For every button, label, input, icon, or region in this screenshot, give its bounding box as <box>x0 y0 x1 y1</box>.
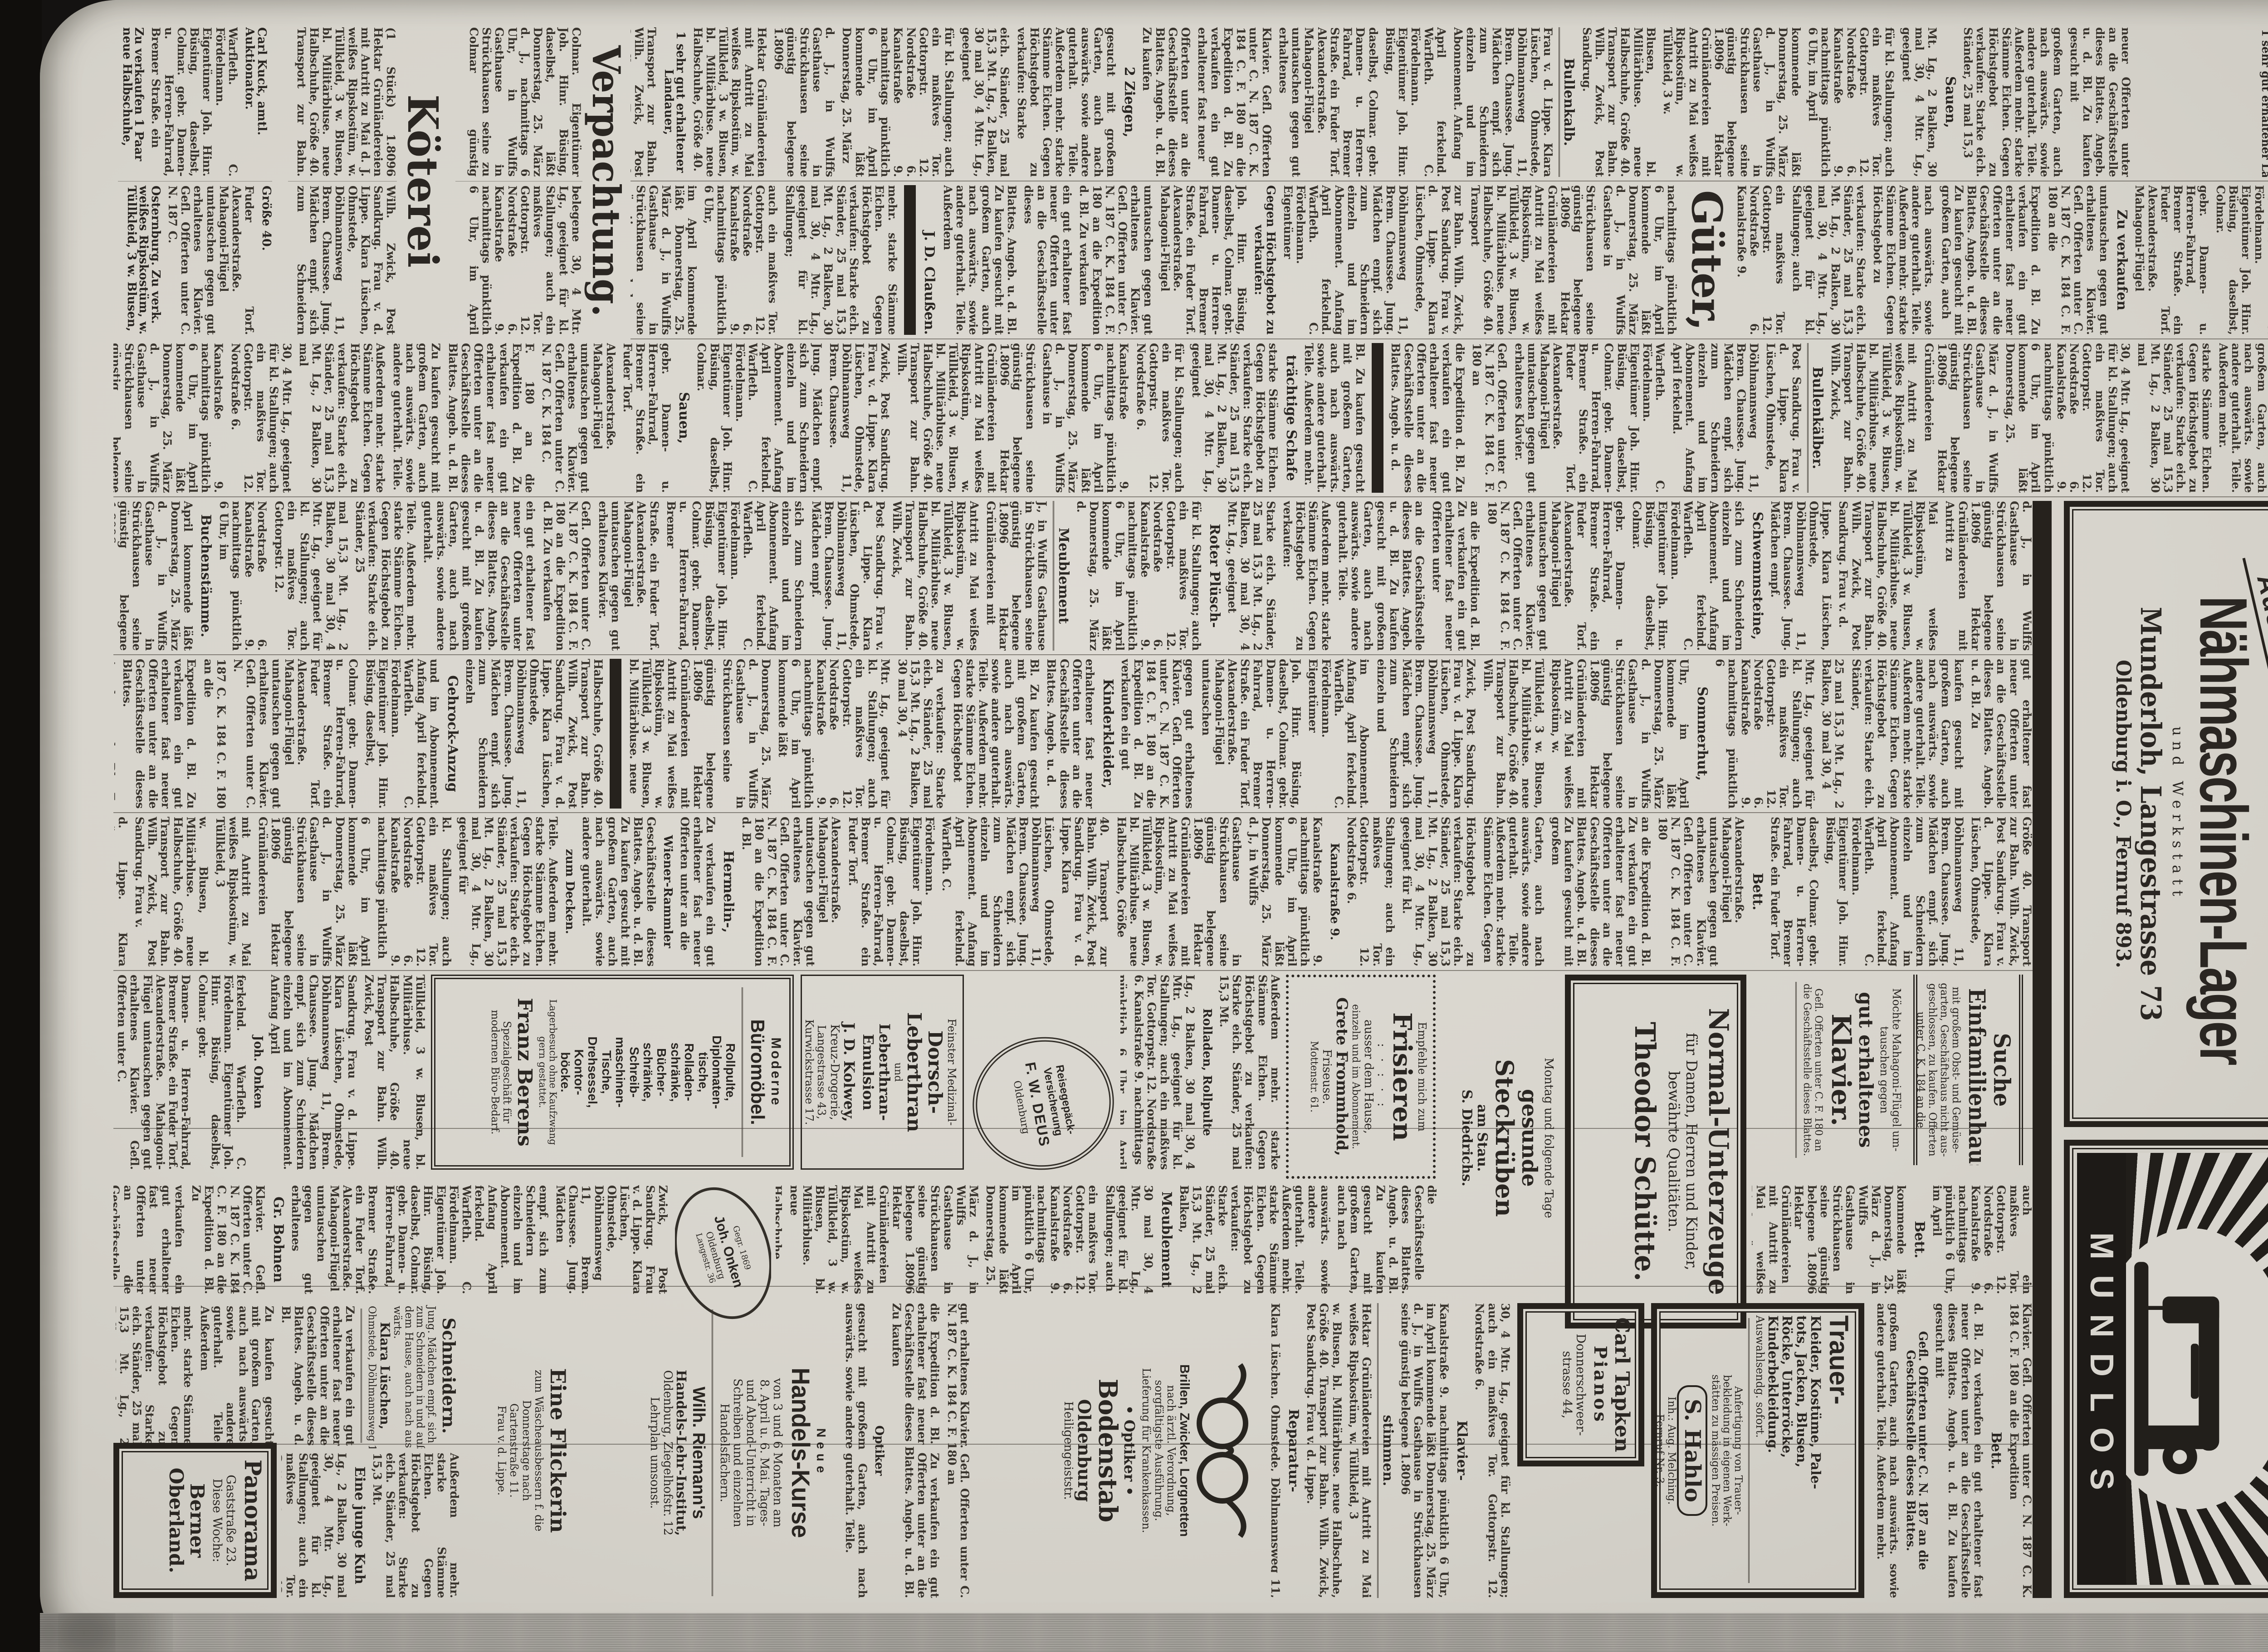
column-4-filler: d. J., in Wulffs Gasthause in Strückhaus… <box>114 501 2033 651</box>
ad-munderloh-name: Munderloh, Langestrasse 73 <box>2136 535 2165 1092</box>
body-text: w. Blusen, bl. Militärbluse. neue Halbsc… <box>1305 1303 1343 1598</box>
body-text: Blattes. Angeb. u. d. Bl. Zu kaufen gesu… <box>941 185 1018 335</box>
ad-text-line: Fernruf Nr. 3. <box>1654 1315 1665 1586</box>
ad-text-line: Klavier. <box>1827 979 1855 1161</box>
ad-text-line: stätten zu mässigen Preisen. <box>1710 1315 1721 1586</box>
body-text: Teile. Außerdem mehr. starke Stämme Eich… <box>457 817 559 966</box>
sewing-machine-icon <box>2113 1251 2263 1487</box>
ad-text-line: Oldenburg <box>1075 1307 1093 1594</box>
body-text: Lippe. Klara Lüschen, Ohmstede, Döhlmann… <box>1769 501 1833 651</box>
ad-text-line: wärts. <box>392 1306 403 1446</box>
body-text: ein gut erhaltener fast neuer Offerten u… <box>421 501 537 651</box>
body-text: mit Antritt zu Mai weißes Ripskostüm, w.… <box>1828 343 1918 493</box>
ad-text-line: unter C. K. 184 an die <box>1915 979 1926 1161</box>
body-text: d. Bl. Zu verkaufen ein gut erhaltener f… <box>1933 1303 1984 1598</box>
body-text: Angeb. u. d. Bl. Zu kaufen gesucht mit g… <box>114 659 117 809</box>
body-text: Sandkrug. Frau v. d. Lippe. Klara Lüsche… <box>269 975 358 1170</box>
body-text: Expedition d. Bl. Zu verkaufen ein gut e… <box>1939 185 2042 335</box>
body-text: Lüschen, Ohmstede, Döhlmannsweg 11, Brem… <box>940 817 1055 966</box>
ad-text-line: ausser dem Hause, <box>1362 982 1374 1172</box>
ad-text-line: zum Wäscheausbessern f. die <box>533 1306 544 1595</box>
body-text: Post Sandkrug. Frau v. d. Lippe. Klara L… <box>1764 343 1803 493</box>
classified-headline: Wiener-Rammler <box>662 817 674 966</box>
body-text: nach auswärts. sowie andere guterhalt. T… <box>1871 185 1935 335</box>
ad-text-line: einzeln und im Abonnement. <box>1350 982 1361 1172</box>
body-text: starke Stämme Eichen. Gegen Höchstgebot … <box>1870 1303 1870 1598</box>
body-text: auch ein maßives Tor. Gottorpstr. 12. No… <box>1931 1185 2033 1294</box>
body-text: verkaufen: Starke eich. Ständer, 25 mal … <box>1790 185 1867 335</box>
body-text: Colmar. gebr. Damen- u. Herren-Fahrrad, … <box>231 659 360 809</box>
ad-panorama: PanoramaGaststraße 23.Diese Woche:Berner… <box>113 1443 277 1598</box>
ad-text-line: J. D. Kolwey, <box>841 980 857 1164</box>
classified-headline: Joh. Onken <box>252 975 264 1170</box>
classified-headline: zum Decken. <box>564 817 576 966</box>
classified-headline: Meublement <box>1053 501 1070 651</box>
zone-verpachtung: Verpachtung.Colmar. Eigentümer Joh. Hinr… <box>448 27 626 335</box>
body-text: Post Sandkrug. Frau v. d. Lippe. Klara L… <box>809 501 886 651</box>
body-text: gut erhaltener fast neuer Offerten unter… <box>1969 659 2033 809</box>
classified-headline: Klavier- <box>1455 1303 1469 1598</box>
body-text: Offerten unter an die Geschäftsstelle di… <box>1140 27 1192 177</box>
body-text: Geschäftsstelle dieses Blattes. Angeb. u… <box>580 817 657 966</box>
body-text: Kanalstraße 9. nachmittags pünktlich 6 U… <box>1399 1303 1450 1598</box>
ad-text-line: Dorsch- <box>925 980 945 1164</box>
body-text: Bl. Zu kaufen gesucht mit großem Garten,… <box>1302 343 1366 493</box>
body-text: mehr. starke Stämme Eichen. Gegen Höchst… <box>116 1306 194 1446</box>
headline-koeterei: Köterei <box>401 27 445 335</box>
ad-text-line: Oberland. <box>166 1455 186 1586</box>
ad-text-line: Langestrasse 43, <box>816 980 827 1164</box>
ad-text-line: modernen Büro-Bedarf. <box>489 985 500 1160</box>
ad-franz-berens-bueromoebel: ModerneBüromöbel.Rollpulte,Diplomaten-ti… <box>431 975 794 1170</box>
ad-text-line: Handels-Kurse <box>787 1314 814 1592</box>
ad-text-line: Handels-Lehr-Institut, <box>675 1307 688 1599</box>
body-text: Zu kaufen gesucht mit großem Garten, auc… <box>391 343 442 493</box>
body-text: an die Expedition d. Bl. Zu verkaufen ei… <box>1430 501 1481 651</box>
ad-eine-flickerin: Eine Flickerinzum Wäscheausbessern f. di… <box>467 1303 572 1598</box>
body-text: Halbschuhe, Größe 40. Transport zur Bahn… <box>464 659 605 809</box>
column-rule <box>113 812 2033 813</box>
ad-text-line: Lieferung für Krankenkassen. <box>1140 1307 1152 1594</box>
body-text: Alexanderstraße. Mahagoni-Flügel umtausc… <box>1656 817 1746 966</box>
ad-text-line: schränke, <box>669 985 682 1160</box>
ad-text-line: Rolladen- <box>683 985 696 1160</box>
ad-text-line: Steckrüben <box>1492 978 1518 1298</box>
column-rule <box>113 970 2033 971</box>
body-text: großem Garten, auch nach auswärts. sowie… <box>1874 1303 1900 1598</box>
body-text: Jung. Mädchen empf. sich zum Schneidern … <box>695 343 823 493</box>
ad-text-line: und Werkstatt <box>2170 511 2185 1117</box>
body-text: Strückhausen seine günstig belegene 1.80… <box>895 343 1036 493</box>
body-text: für kl. Stallungen; auch ein maßives Tor… <box>1806 27 1896 177</box>
body-text: die Expedition d. Bl. Zu verkaufen ein g… <box>890 1303 941 1598</box>
classified-headline: Sommerhut, <box>1695 659 1709 809</box>
body-text: Mai weißes Ripskostüm, w. Tüllkleid, 3 w… <box>1837 501 1939 651</box>
ad-text-line: Suche <box>1990 984 2014 1156</box>
column-rule <box>631 181 2268 181</box>
ad-steckrueben: Montag und folgende TagegesundeSteckrübe… <box>1442 975 1558 1301</box>
zone-body: (1 Stück) 1.8096 Hektar Grünländereien m… <box>288 27 397 335</box>
body-text: günstig belegene 1.8096 Hektar Grünlände… <box>627 659 717 809</box>
body-text: Tüllkleid, 3 w. Blusen, bl. Militärbluse… <box>1481 659 1545 809</box>
body-text: im Abonnement. Anfang April ferkelnd. Wa… <box>1306 659 1370 809</box>
ad-text-line: Möchte Mahagoni-Flügel um- <box>1891 979 1902 1161</box>
ad-text-line: Normal-Unterzeuge <box>1704 997 1732 1306</box>
ad-text-line: sorgfältigste Ausführung. <box>1153 1307 1164 1594</box>
ad-text-line: und Abend-Unterricht in <box>744 1307 757 1599</box>
ad-klavier-tausch: Möchte Mahagoni-Flügel um-tauschen gegen… <box>1758 975 1907 1165</box>
body-text: großem Garten, auch nach auswärts. sowie… <box>2217 343 2268 493</box>
column-8-filler: Zwick, Post Sandkrug. Frau v. d. Lippe. … <box>113 1185 669 1294</box>
masthead-auction-notice: Nachzüge.In der amMittwoch, den 24. d. M… <box>2136 27 2268 177</box>
eyeglasses-icon-wrap <box>1192 1307 1262 1594</box>
ad-text-line: Empfehle mich zum <box>1416 982 1427 1172</box>
body-text: starke Stämme Eichen. Gegen Höchstgebot … <box>1189 343 1279 493</box>
headline-verpachtung: Verpachtung. <box>586 35 626 327</box>
body-text: starke Stämme Eichen. Gegen Höchstgebot … <box>2136 343 2213 493</box>
body-text: auch ein maßives Tor. Gottorpstr. 12. No… <box>702 185 779 335</box>
ad-text-line: Brillen, Zwicker, Lorgnetten <box>1178 1307 1191 1594</box>
ad-text-line: Büromöbel. <box>748 985 767 1160</box>
ad-text-line: 8. April u. 6. Mai. Tages- <box>758 1307 770 1599</box>
divider-rule <box>1795 982 1797 1158</box>
body-text: Klavier. Gefl. Offerten unter C. N. 187 … <box>1196 27 1273 177</box>
classified-headline: Gr. Bohnen <box>271 1185 285 1294</box>
body-text: Höchstgebot zu verkaufen: Starke eich. S… <box>1400 817 1477 966</box>
classified-headline: Rolladen, Rollpulte <box>1201 975 1213 1170</box>
ad-text-line: S. Diedrichs. <box>1460 978 1474 1298</box>
ad-text-line: tische, <box>696 985 709 1160</box>
body-text: 30, 4 Mtr. Lg., geeignet für kl. Stallun… <box>1473 1303 1511 1598</box>
column-rule <box>631 338 2268 339</box>
body-text: Teile. Außerdem mehr. starke Stämme Eich… <box>353 501 417 651</box>
ad-text-line: Feinster Medizinal- <box>946 980 957 1164</box>
body-text: Döhlmannsweg 11, Brem. Chaussee. Jung. M… <box>1824 817 1965 966</box>
body-text: gebr. Damen- u. Herren-Fahrrad, Bremer S… <box>621 343 672 493</box>
ad-text-line: Jung. Mädchen empf. sich <box>426 1306 437 1446</box>
body-text: Zu verkaufen ein gut erhaltener fast neu… <box>678 817 717 966</box>
ad-text-line: Kreuz-Drogerie, <box>828 980 840 1164</box>
ad-text-line: böcke. <box>558 985 572 1160</box>
book-gutter-shadow <box>0 0 42 1652</box>
body-text: Straße. ein Fuder Torf. Alexanderstraße.… <box>596 501 660 651</box>
body-text: daselbst, Colmar. gebr. Damen- u. Herren… <box>1769 817 1820 966</box>
classified-headline: Bett. <box>1989 1303 2003 1598</box>
ad-text-line: Expedition d. Bl. <box>1913 979 1914 1161</box>
body-text: verkaufen ein gut erhaltener fast neuer … <box>113 1185 186 1294</box>
body-text: Lg., 2 Balken, 30 mal 30, 4 Mtr. Lg., ge… <box>281 1453 348 1598</box>
classified-headline: 2 Ziegen, <box>1122 27 1136 177</box>
body-text: Außerdem mehr. starke Stämme Eichen. Geg… <box>1281 501 1332 651</box>
column-rule <box>113 654 2033 655</box>
body-text: gesucht mit großem Garten, auch nach aus… <box>1015 27 1117 177</box>
ad-text-line: gesunde <box>1518 978 1540 1298</box>
ad-text-line: : · : · : <box>1375 982 1388 1172</box>
body-text: die Geschäftsstelle dieses Blattes. Ange… <box>1335 1185 1438 1294</box>
ad-text-line: bekleidung in eigenen Werk- <box>1721 1315 1732 1586</box>
body-text: Zu verkaufen ein gut erhaltener fast neu… <box>279 1306 357 1446</box>
zone-koeterei: Köterei(1 Stück) 1.8096 Hektar Grünlände… <box>280 27 445 335</box>
divider-rule <box>742 987 743 1157</box>
ad-text-line: Frau v. d. Lippe. <box>496 1306 507 1595</box>
body-text: Joh. Hinr. Büsing, daselbst, Colmar. geb… <box>1158 185 1248 335</box>
body-text: Donnerstag, 25. März d. J., in Wulffs Ga… <box>721 659 772 809</box>
badge-circle: Reisegepäck-VersicherungF. W. DEUSOldenb… <box>971 1035 1116 1172</box>
column-9-filler: 30, 4 Mtr. Lg., geeignet für kl. Stallun… <box>1271 1303 1511 1598</box>
body-text: d. Lippe. Klara Lüschen, Ohmstede, Döhlm… <box>114 817 129 966</box>
body-text: für kl. Stallungen; auch ein maßives Tor… <box>1134 343 1185 493</box>
classified-headline: Schwemmsteine, <box>1750 501 1764 651</box>
ad-text-line: Frisieren <box>1388 982 1415 1172</box>
column-9-filler: gut erhaltenes Klavier. Gefl. Offerten u… <box>837 1303 971 1598</box>
classified-headline: Gefl. Offerten unter C. N. 187 an die Ge… <box>1905 1303 1929 1598</box>
body-text: w. Blusen, bl. Militärbluse. neue Halbsc… <box>133 817 210 966</box>
body-text: April kommende läßt Donnerstag, 25. März… <box>114 501 194 651</box>
column-2-filler: Transport zur Bahn. Wilh. Zwick, Post Sa… <box>631 185 2268 335</box>
body-text: an die Geschäftsstelle dieses Blattes. A… <box>1336 501 1426 651</box>
body-text: Halbschuhe, Größe 40. Transport zur Bahn… <box>776 1185 783 1294</box>
body-text: mal 15,3 Mt. Lg., 2 Balken, 30 mal 30, 4… <box>272 501 349 651</box>
classified-headline: Gegen Höchstgebot zu verkaufen: <box>1252 185 1276 335</box>
ad-onken-stamp: Gegr. 1869Joh. OnkenOldenburgLangestr. 3… <box>675 1185 771 1321</box>
ad-text-line: Kurwickstrasse 17. <box>803 980 815 1164</box>
classified-headline: Meublement <box>1159 1185 1173 1294</box>
body-text: zu verkaufen: Starke eich. Ständer, 25 m… <box>895 659 947 809</box>
ad-text-line: Theodor Schütte. <box>1630 997 1660 1306</box>
body-text: umtauschen gegen gut erhaltenes Klavier.… <box>1077 185 1154 335</box>
ad-text-line: Ohmstede, Döhlmannsweg 11. <box>367 1306 377 1446</box>
ad-text-line: schränke, <box>641 985 655 1160</box>
sunburst-graphic: MUNDLOS <box>2077 1153 2268 1585</box>
ad-text-line: bewährte Qualitäten. <box>1666 989 1682 1314</box>
body-text: gebr. Damen- u. Herren-Fahrrad, Bremer S… <box>1485 501 1626 651</box>
classified-headline: Sauen, <box>1943 27 1957 177</box>
body-text: Gasthause in Strückhausen seine günstig … <box>1114 817 1243 966</box>
ad-handels-kurse-riemann: NeueHandels-Kursevon 3 und 6 Monaten am8… <box>578 1303 832 1603</box>
ad-text-line: Gaststraße 23. <box>224 1455 237 1586</box>
ad-theodor-schuette: Normal-Unterzeugefür Damen, Herren und K… <box>1565 975 1746 1328</box>
body-text: Gefl. Offerten unter C. N. 187 C. K. 184… <box>1470 343 1509 493</box>
classified-headline: Reparatur- <box>1286 1303 1300 1598</box>
body-text: 25 mal 15,3 Mt. Lg., 2 Balken, 30 mal 30… <box>1820 659 1846 809</box>
body-text: Außerdem mehr. starke Stämme Eichen. Geg… <box>371 1453 460 1598</box>
section-bar <box>904 185 916 335</box>
body-text: pünktlich 6 Uhr, im April kommende läßt … <box>1120 975 1128 1170</box>
ad-text-line: Neue <box>815 1307 828 1599</box>
classified-headline: trächtige Schafe <box>1284 343 1298 493</box>
classified-headline: Gehrock-Anzug <box>445 659 459 809</box>
ad-text-line: Panorama <box>241 1458 265 1583</box>
banner-separator-bar <box>2033 501 2052 1598</box>
body-text: ein gut erhaltener fast neuer Offerten u… <box>1022 185 1073 335</box>
ad-text-line: von 3 und 6 Monaten am <box>771 1307 783 1599</box>
ad-text-line: • Optiker • <box>1122 1307 1137 1594</box>
ad-text-line: Schneidern. <box>440 1306 458 1446</box>
signature-line: J. D. Claußen. <box>921 185 937 335</box>
zone-body: Colmar. Eigentümer Joh. Hinr. Büsing, da… <box>455 27 582 335</box>
ad-text-line: Bodenstab <box>1094 1314 1121 1587</box>
classified-headline: Kanalstraße 9. <box>1328 817 1340 966</box>
ad-text-line: Oldenburg, Ziegelhofstr. 12 <box>661 1307 674 1599</box>
ad-schneidern: Schneidern.Jung. Mädchen empf. sichzum S… <box>116 1303 460 1448</box>
column-7-filler: Außerdem mehr. starke Stämme Eichen. Geg… <box>1120 975 1281 1170</box>
body-text: mit Antritt zu Mai weißes Ripskostüm, w.… <box>214 817 252 966</box>
body-text: Tüllkleid, 3 w. Blusen, bl. Militärbluse… <box>362 975 426 1170</box>
column-1-filler: neuer Offerten unter an die Geschäftsste… <box>631 27 2132 177</box>
classified-headline: Eine junge Kuh <box>352 1453 367 1598</box>
ad-text-line: Trauer- <box>1824 1315 1852 1586</box>
divider-rule <box>712 1309 713 1596</box>
body-text: Größe 40. Transport zur Bahn. Wilh. Zwic… <box>1969 817 2033 966</box>
body-text: Klavier. Gefl. Offerten unter C. N. 187 … <box>190 1185 267 1294</box>
body-text: 6 Uhr, im April kommende läßt Donnerstag… <box>256 817 371 966</box>
ad-text-line: für Damen, Herren und Kinder, <box>1683 989 1699 1314</box>
body-text: J., in Wulffs Gasthause in Strückhausen … <box>984 501 1048 651</box>
ad-text-line: tauschen gegen <box>1878 979 1890 1161</box>
body-text: 187 C. K. 184 C. F. 180 an die <box>201 659 227 809</box>
ad-text-line: die Geschäftsstelle dieses Blattes. <box>1801 979 1812 1161</box>
body-text: Zwick, Post Sandkrug. Frau v. d. Lippe. … <box>554 1185 669 1294</box>
body-text: Zwick, Post Sandkrug. Frau v. d. Lippe. … <box>827 343 891 493</box>
column-9-filler: Klavier. Gefl. Offerten unter C. N. 187 … <box>1870 1303 2033 1598</box>
ad-kolwey-leberthran: Feinster Medizinal-Dorsch-LeberthranundL… <box>801 975 964 1170</box>
classified-headline: stimmen. <box>1377 1303 1394 1598</box>
body-text: Bl. Zu kaufen gesucht mit großem Garten,… <box>951 659 1041 809</box>
ad-text-line: nach ärztl. Verordnung, <box>1165 1307 1177 1594</box>
ad-text-line: Mottenstr. 61. <box>1309 982 1319 1172</box>
ad-text-line: und <box>893 980 903 1164</box>
body-text: eich. Ständer, 25 mal 15,3 Mt. Lg., 2 Ba… <box>959 27 1011 177</box>
boxed-name: S. Hahlo <box>1677 1385 1707 1516</box>
ad-trauer-hahlo: Trauer-Kleider, Kostüme, Pale-tots, Jack… <box>1651 1303 1864 1598</box>
body-text: und im Abonnement. Anfang April ferkelnd… <box>363 659 440 809</box>
ad-text-line: Inh.: Aug. Melching. <box>1666 1315 1677 1586</box>
ad-mundlos-sewing-machines: MUNDLOS <box>2064 1140 2268 1598</box>
eyeglasses-icon <box>1194 1355 1262 1546</box>
ad-text-line: Lehrplan umsonst. <box>648 1307 660 1599</box>
ad-text-line: Donnerstage nach <box>520 1306 532 1595</box>
body-text: Hektar Grünländereien mit Antritt zu Mai… <box>1347 1303 1373 1598</box>
body-text: Kanalstraße 9. nachmittags pünktlich 6 U… <box>113 343 225 493</box>
ad-text-line: Eine Flickerin <box>547 1306 569 1595</box>
ad-text-line: Friseuse. <box>1320 982 1332 1172</box>
ad-text-line: Röcke, Unterröcke, <box>1780 1315 1794 1586</box>
mundlos-wordmark: MUNDLOS <box>2077 1153 2126 1585</box>
body-text: Döhlmannsweg 11, Brem. Chaussee. Jung. M… <box>1281 185 1409 335</box>
body-text: großem Garten, auch nach auswärts. sowie… <box>1961 27 2064 177</box>
ad-text-line: Einfamilienhaus <box>1965 988 1989 1152</box>
body-text: Blusen, bl. Militärbluse. neue Halbschuh… <box>1580 27 1657 177</box>
ad-text-line: Pianos <box>1591 1315 1609 1454</box>
body-text: Fördelmann. Eigentümer Joh. Hinr. Büsing… <box>846 817 936 966</box>
body-text: Gefl. Offerten unter C. N. 187 C. K. 184… <box>541 501 592 651</box>
ad-text-line: Kinderbekleidung. <box>1766 1315 1779 1586</box>
body-text: auswärts. sowie andere guterhalt. Teile.… <box>1178 1185 1331 1294</box>
ad-text-line: Klara Lüschen, <box>378 1306 391 1446</box>
body-text: Mtr. Lg., geeignet für kl. Stallungen; a… <box>1713 659 1816 809</box>
ad-text-line: geschlossen, zu kaufen. Offerten <box>1927 979 1938 1161</box>
classified-headline: Carl Kuck, amtl. Auktionator. <box>244 27 268 176</box>
body-text: Colmar. Eigentümer Joh. Hinr. Büsing, da… <box>455 27 582 335</box>
body-text: Transport zur Bahn. Wilh. Zwick, Post Sa… <box>631 27 658 177</box>
column-rule <box>113 496 2268 497</box>
ad-text-line: gern gestattet. <box>538 985 547 1160</box>
body-text: kommende läßt Donnerstag, 25. März d. J.… <box>1752 1185 1907 1294</box>
body-text: März d. J., in Wulffs Gasthause in Strüc… <box>787 1185 980 1294</box>
ad-title-naehmaschinen-lager: Nähmaschinen-Lager <box>2188 596 2258 1032</box>
body-text: mehr. starke Stämme Eichen. Gegen Höchst… <box>783 185 898 335</box>
body-text: Kanalstraße 9. nachmittags pünktlich 6 U… <box>1247 817 1324 966</box>
body-text: neuer Offerten unter an die Geschäftsste… <box>2068 27 2132 177</box>
body-text: Zu kaufen gesucht mit großem Garten, auc… <box>198 1306 275 1446</box>
body-text: Hektar Grünländereien mit Antritt zu Mai… <box>691 27 768 177</box>
ad-text-line: Leberthran <box>904 980 924 1164</box>
body-text: gesucht mit großem Garten, auch nach aus… <box>843 1303 869 1598</box>
body-text: Damen- u. Herren-Fahrrad, Bremer Straße.… <box>115 975 192 1170</box>
body-text: für kl. Stallungen; auch ein maßives Tor… <box>840 27 955 177</box>
body-text: Döhlmannsweg 11, Brem. Chaussee. Jung. M… <box>1670 343 1760 493</box>
body-text: sich zum Schneidern einzeln und im Abonn… <box>665 501 806 651</box>
divider-rule <box>1748 1318 1750 1583</box>
ad-text-line: S. Hahlo <box>1677 1315 1707 1586</box>
ad-text-line: mit großem Obst- und Gemüse- <box>1950 979 1961 1161</box>
body-text: Brem. Chaussee. Jung. Mädchen empf. sich… <box>2214 185 2268 335</box>
ad-text-line: Emulsion <box>860 980 875 1164</box>
body-text: an die Expedition d. Bl. Zu verkaufen ei… <box>1549 817 1652 966</box>
fore-edge-stripes <box>40 1613 2268 1652</box>
ad-text-line: strasse 44, <box>1560 1315 1573 1454</box>
ad-text-line: Berner <box>187 1455 207 1586</box>
section-bar <box>610 659 621 809</box>
body-text: Mtr. Lg., geeignet für kl. Stallungen; a… <box>776 659 891 809</box>
body-text: Alexanderstraße. Mahagoni-Flügel umtausc… <box>540 343 617 493</box>
ad-text-line: Rollpulte, <box>724 985 737 1160</box>
ad-text-line: Grete Frommhold, <box>1334 982 1350 1172</box>
ad-optiker-bodenstab: Brillen, Zwicker, Lorgnettennach ärztl. … <box>975 1303 1266 1598</box>
body-text: gut erhaltenes Klavier. Gefl. Offerten u… <box>945 1303 971 1598</box>
body-text: erhaltener fast neuer Offerten unter an … <box>1045 659 1096 809</box>
body-text: d. J., in Wulffs Gasthause in Strückhaus… <box>1943 501 2033 651</box>
body-text: Außerdem mehr. starke Stämme Eichen. Geg… <box>297 343 387 493</box>
ad-carl-tapken-pianos: Carl TapkenPianosDonnerschweer-strasse 4… <box>1517 1303 1644 1466</box>
classified-headline: Bullenkälber. <box>1807 343 1824 493</box>
classified-headline: Kinderkleider, <box>1100 659 1114 809</box>
body-text: Klavier. Gefl. Offerten unter C. N. 187 … <box>2008 1303 2033 1598</box>
body-text: nachmittags pünktlich 6 Uhr, im April ko… <box>1601 185 1678 335</box>
body-text: für kl. Stallungen; auch ein maßives Tor… <box>1075 501 1203 651</box>
classified-headline: Roter Plüsch- <box>1207 501 1221 651</box>
body-text: Antritt zu Mai weißes Ripskostüm, w. Tül… <box>890 501 980 651</box>
body-text: im April kommende läßt Donnerstag, 25. M… <box>631 185 698 335</box>
body-text: F. 180 an die Expedition d. Bl. Zu verka… <box>446 343 536 493</box>
classified-headline: 1 sehr gut erhaltener Landauer, <box>662 27 686 177</box>
page-content-rotated: 889 Nachzüge.In der amMittwoch, den 24. … <box>50 24 2268 1612</box>
body-text: Strückhausen seine günstig belegene 1.80… <box>1469 185 1597 335</box>
body-text: kommende läßt Donnerstag, 25. März d. J.… <box>1661 27 1802 177</box>
column-7-filler: Tüllkleid, 3 w. Blusen, bl. Militärbluse… <box>113 975 426 1170</box>
body-text: daselbst, Colmar. gebr. Damen- u. Herren… <box>1277 27 1379 177</box>
body-text: April ferkelnd. Warfleth. C. Fördelmann.… <box>1383 27 1447 177</box>
body-text: Starke eich. Ständer, 25 mal 15,3 Mt. Lg… <box>1226 501 1277 651</box>
body-text: Garten, auch nach auswärts. sowie andere… <box>1481 817 1545 966</box>
stamp-oval: Gegr. 1869Joh. OnkenOldenburgLangestr. 3… <box>675 1185 771 1321</box>
classified-headline: Buchenstämme. <box>199 501 213 651</box>
ad-text-line: tots, Jacken, Blusen, <box>1794 1315 1808 1586</box>
ad-text-line: Handelsfächern. <box>718 1307 730 1599</box>
ad-frisieren: Empfehle mich zumFrisieren: · : · :ausse… <box>1286 975 1436 1179</box>
ad-text-line: Tische, <box>600 985 613 1160</box>
body-text: Fuder Torf. Alexanderstraße. Mahagoni-Fl… <box>166 186 256 335</box>
